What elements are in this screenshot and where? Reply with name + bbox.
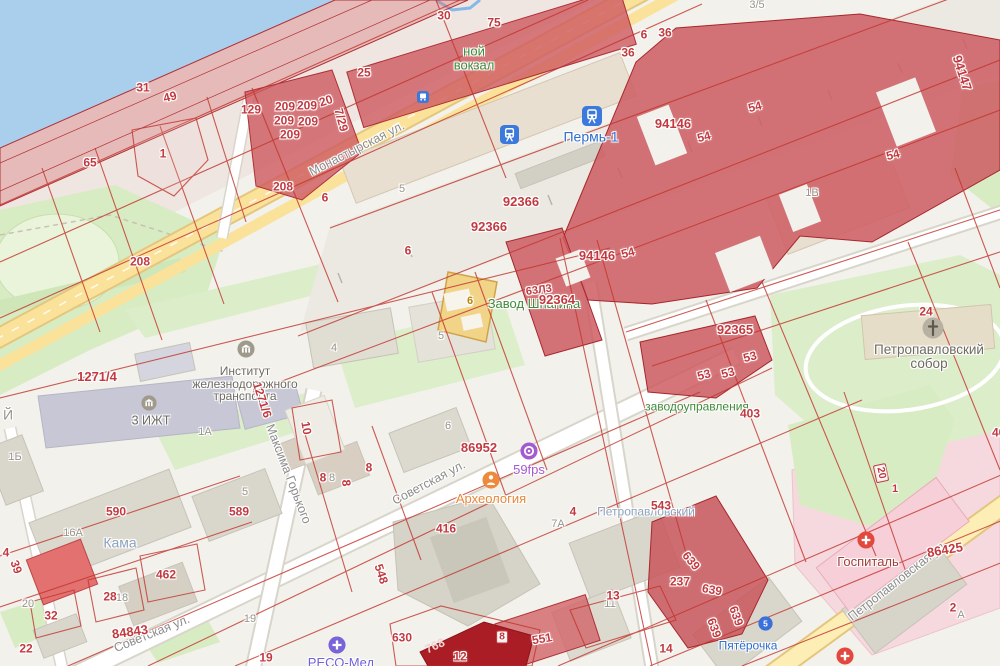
address-label: 1В <box>805 188 818 200</box>
address-label: 6 <box>467 296 473 308</box>
cadastral-label: 94146 <box>579 249 615 263</box>
address-label: 6 <box>445 421 451 433</box>
address-label: 5 <box>242 487 248 499</box>
cadastral-label: 75 <box>487 17 500 30</box>
cadastral-label: 639 <box>701 582 723 598</box>
cadastral-label: 86425 <box>926 540 964 560</box>
poi-label[interactable]: Петропавловскийсобор <box>874 343 984 371</box>
cadastral-label: 1271/4 <box>77 370 117 384</box>
cadastral-label: 4 <box>3 547 10 560</box>
address-label: 5 <box>438 331 444 343</box>
street-label: Монастырская ул. <box>307 119 407 178</box>
labels-layer: Монастырская ул.Советская ул.Советская у… <box>0 0 1000 666</box>
cadastral-label: 54 <box>747 99 763 115</box>
shop5-icon[interactable]: 5 <box>758 616 773 631</box>
cadastral-label: 39 <box>8 559 24 576</box>
cadastral-label: 1 <box>160 148 167 161</box>
cadastral-label: 209 <box>274 115 294 128</box>
poi-label[interactable]: Петропавловский <box>597 506 695 519</box>
address-label: 3/5 <box>749 0 764 12</box>
poi-label[interactable]: РЕСО-Мед <box>308 656 374 666</box>
cadastral-label: 403 <box>992 427 1000 440</box>
address-label: 7А <box>551 519 564 531</box>
cadastral-label: 92366 <box>471 220 507 234</box>
cadastral-label: 32 <box>44 610 57 623</box>
cadastral-label: 208 <box>273 181 293 194</box>
street-label: Максима Горького <box>263 422 313 525</box>
cadastral-label: 53 <box>742 349 758 365</box>
cadastral-label: 10 <box>299 420 314 435</box>
cadastral-label: 54 <box>620 245 636 261</box>
cadastral-label: 2 <box>950 602 957 615</box>
bus-icon[interactable] <box>417 91 429 103</box>
address-label: 1Б <box>8 452 21 464</box>
cadastral-label: 6 <box>405 245 412 258</box>
cadastral-label: 209 <box>280 129 300 142</box>
poi-label[interactable]: Археология <box>456 492 526 506</box>
cadastral-label: 20 <box>873 463 889 483</box>
cadastral-label: 65 <box>83 157 96 170</box>
cadastral-label: 209 <box>298 116 318 129</box>
cadastral-label: 54 <box>696 129 712 145</box>
cadastral-label: 1 <box>892 484 898 496</box>
cadastral-label: 209 <box>275 101 295 114</box>
cadastral-label: 8 <box>339 479 352 487</box>
cadastral-label: 8 <box>496 630 508 643</box>
medical-icon[interactable] <box>328 636 346 654</box>
cadastral-label: 36 <box>621 47 634 60</box>
cadastral-label: 24 <box>919 306 932 319</box>
cadastral-label: 639 <box>680 549 703 572</box>
cadastral-label: 237 <box>670 576 690 589</box>
train-icon[interactable] <box>500 125 519 144</box>
cadastral-label: 31 <box>136 82 149 95</box>
cadastral-label: 8 <box>320 472 327 485</box>
cadastral-label: 12 <box>453 651 466 664</box>
poi-label[interactable]: нойвокзал <box>454 44 495 71</box>
train-icon[interactable] <box>582 106 602 126</box>
cadastral-label: 129 <box>241 104 261 117</box>
cadastral-label: 639 <box>727 604 746 627</box>
poi-label[interactable]: 3 ИЖТ <box>132 414 171 427</box>
address-label: 16А <box>63 528 83 540</box>
cadastral-label: 589 <box>229 506 249 519</box>
svg-text:5: 5 <box>763 618 768 628</box>
poi-label[interactable]: заводоуправления <box>645 401 749 414</box>
address-label: Й <box>3 408 13 423</box>
cadastral-label: 630 <box>392 632 412 645</box>
cadastral-label: 6 <box>641 29 648 42</box>
poi-label[interactable]: Пермь-1 <box>563 130 618 145</box>
poi-label[interactable]: Кама <box>103 536 136 551</box>
cadastral-label: 13 <box>606 590 619 603</box>
cadastral-label: 94146 <box>655 117 691 131</box>
cadastral-label: 92365 <box>717 323 753 337</box>
cadastral-label: 20 <box>318 93 335 109</box>
church-icon[interactable] <box>922 317 944 339</box>
map-root[interactable]: Монастырская ул.Советская ул.Советская у… <box>0 0 1000 666</box>
cadastral-label: 462 <box>156 569 176 582</box>
cadastral-label: 53 <box>696 367 712 383</box>
address-label: А <box>957 610 964 622</box>
hospital-icon[interactable] <box>836 647 854 665</box>
address-label: 18 <box>116 593 128 605</box>
cadastral-label: 590 <box>106 506 126 519</box>
cadastral-label: 92366 <box>503 195 539 209</box>
cadastral-label: 19 <box>259 652 272 665</box>
poi-label[interactable]: Госпиталь <box>837 555 899 569</box>
poi-label[interactable]: Пятёрочка <box>719 640 778 653</box>
school-icon[interactable] <box>237 340 255 358</box>
cadastral-label: 543 <box>651 500 671 513</box>
cadastral-label: 7/29 <box>332 107 350 133</box>
poi-label[interactable]: 59fps <box>513 463 545 477</box>
cadastral-label: 6 <box>322 192 329 205</box>
address-label: 8 <box>329 473 335 485</box>
cadastral-label: 94147 <box>950 54 974 93</box>
cadastral-label: 36 <box>658 27 671 40</box>
address-label: 20 <box>22 599 34 611</box>
fps-icon[interactable] <box>520 442 538 460</box>
cadastral-label: 92364 <box>539 293 575 307</box>
cadastral-label: 53 <box>720 365 736 381</box>
address-label: 5 <box>399 184 405 196</box>
address-label: 19 <box>244 614 256 626</box>
cadastral-label: 25 <box>357 67 370 80</box>
address-label: 1А <box>198 427 211 439</box>
cadastral-label: 768 <box>423 636 446 656</box>
address-label: 4 <box>331 343 337 355</box>
cadastral-label: 551 <box>531 631 553 647</box>
cadastral-label: 8 <box>366 462 373 475</box>
cadastral-label: 639 <box>705 616 724 639</box>
cadastral-label: 14 <box>659 643 672 656</box>
hospital-icon[interactable] <box>857 531 875 549</box>
poi-label[interactable]: Институтжелезнодорожноготранспорта <box>192 365 297 403</box>
person-icon[interactable] <box>482 471 500 489</box>
cadastral-label: 208 <box>130 256 150 269</box>
cadastral-label: 30 <box>437 10 450 23</box>
cadastral-label: 54 <box>885 147 901 163</box>
cadastral-label: 416 <box>436 523 456 536</box>
school-icon[interactable] <box>141 395 157 411</box>
cadastral-label: 403 <box>740 408 760 421</box>
cadastral-label: 49 <box>162 89 178 105</box>
cadastral-label: 548 <box>372 563 390 586</box>
cadastral-label: 86952 <box>461 441 497 455</box>
cadastral-label: 22 <box>19 643 32 656</box>
cadastral-label: 4 <box>570 506 577 519</box>
cadastral-label: 209 <box>297 100 317 113</box>
cadastral-label: 28 <box>103 591 116 604</box>
